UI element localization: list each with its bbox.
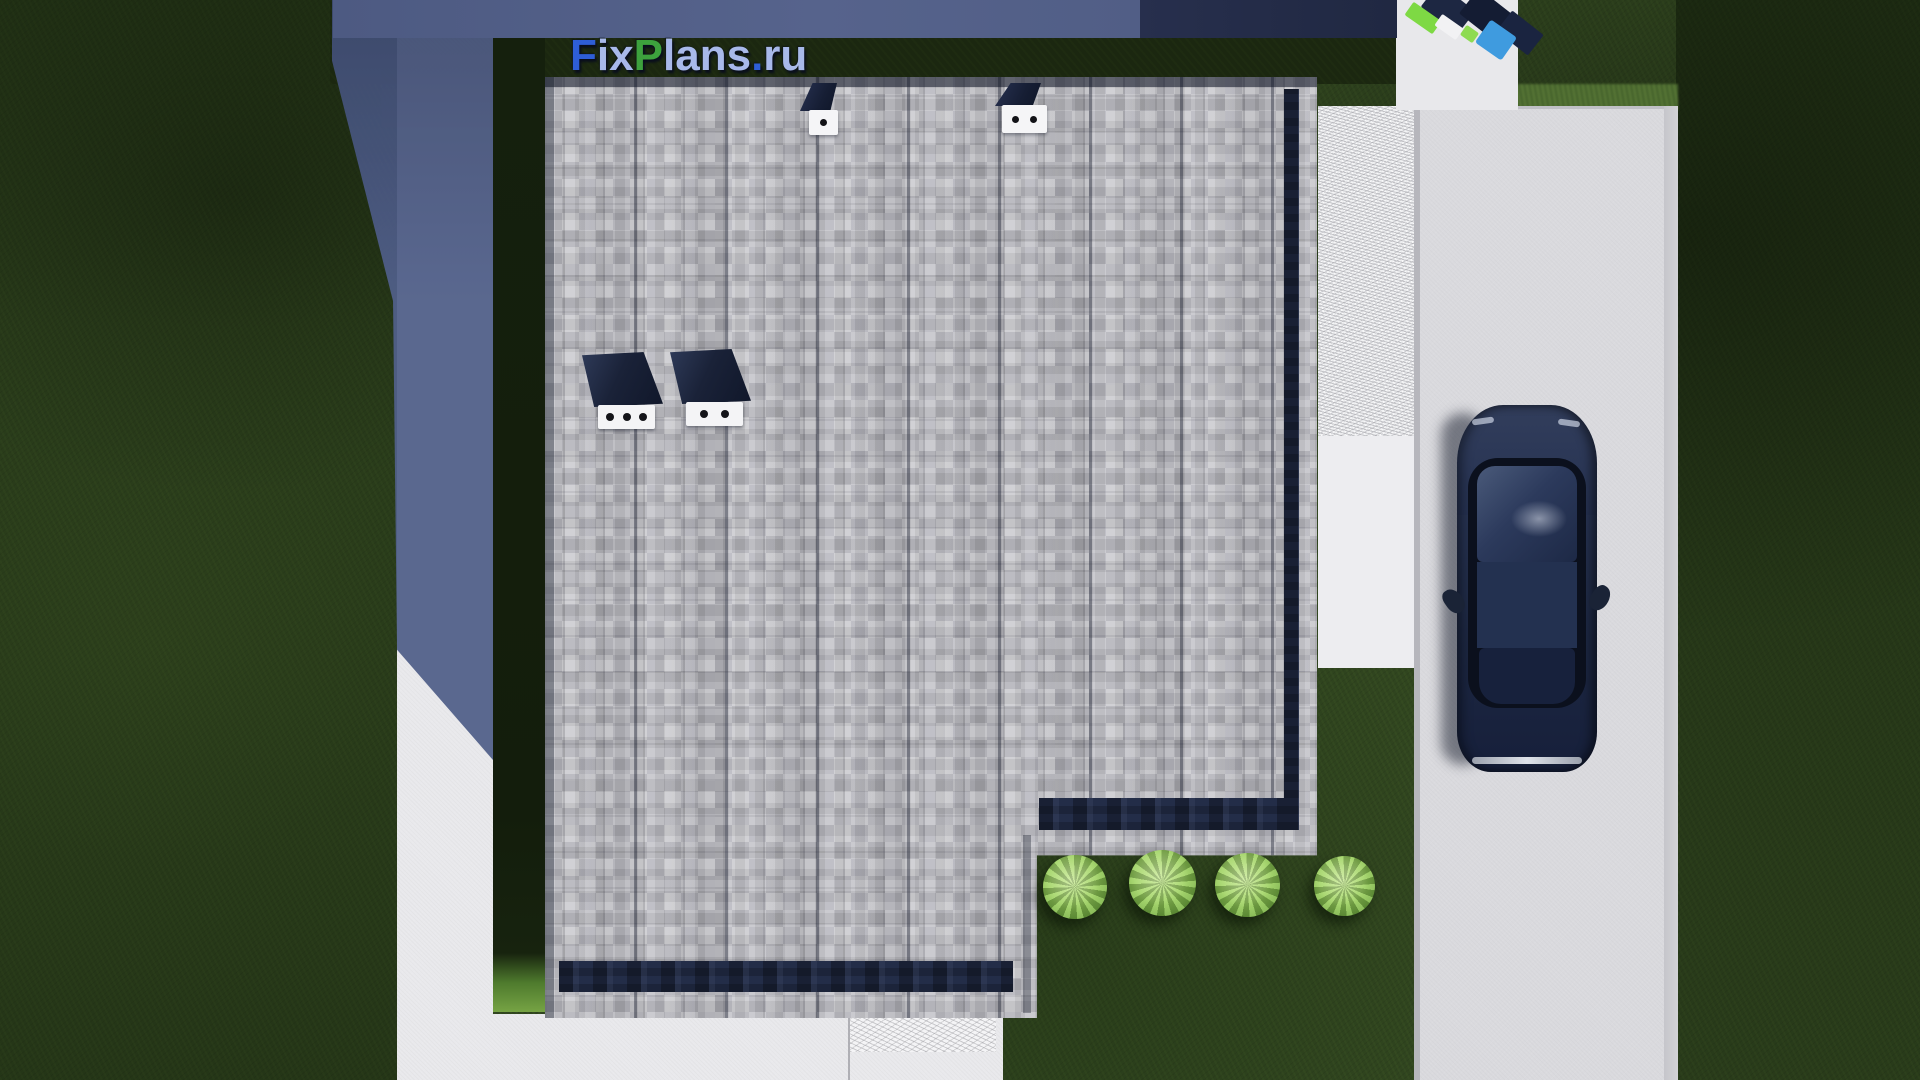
- grass-left-dark: [0, 0, 400, 1080]
- logo-letter-8: .: [751, 34, 763, 78]
- site-plan-render: FixPlans.ru: [0, 0, 1920, 1080]
- logo-letter-4: l: [663, 34, 675, 78]
- logo-letter-0: F: [570, 34, 597, 78]
- vent-1-hole: [820, 119, 827, 126]
- roof-border-notch: [1039, 798, 1299, 830]
- car-roof: [1477, 562, 1577, 648]
- vent-1-face: [809, 110, 838, 135]
- roof-border-step: [1023, 835, 1031, 1013]
- bush-3: [1215, 853, 1280, 917]
- chimney-2-face: [686, 402, 743, 426]
- logo-letter-6: n: [700, 34, 727, 78]
- bush-4: [1314, 856, 1375, 916]
- chimney-1-hole-1: [606, 413, 614, 421]
- chimney-2-hole-1: [700, 410, 708, 418]
- driveway-right-edge: [1664, 106, 1678, 1080]
- car-windshield: [1479, 648, 1575, 704]
- fixplans-logo: FixPlans.ru: [570, 34, 807, 80]
- bush-2: [1129, 850, 1196, 916]
- walkway-seam: [848, 1016, 850, 1080]
- roof-left-edge: [545, 77, 554, 1018]
- chimney-1-face: [598, 405, 655, 429]
- logo-letter-9: r: [763, 34, 780, 78]
- logo-letter-5: a: [675, 34, 699, 78]
- grass-right-dark: [1676, 0, 1920, 1080]
- chimney-1-hole-3: [639, 413, 647, 421]
- logo-letter-7: s: [727, 34, 751, 78]
- driveway-left-seam: [1414, 106, 1420, 1080]
- roof-border-right: [1284, 89, 1299, 830]
- vent-2-hole-2: [1030, 116, 1037, 123]
- chimney-1-hole-2: [623, 413, 631, 421]
- logo-letter-10: u: [780, 34, 807, 78]
- bush-1: [1043, 855, 1107, 919]
- logo-letter-3: P: [634, 34, 663, 78]
- vent-2-face: [1002, 105, 1047, 133]
- shaded-grass-strip-left-of-house: [493, 28, 545, 1012]
- vent-2-hole-1: [1012, 116, 1019, 123]
- car-front-chrome-trim: [1472, 757, 1582, 764]
- chimney-2-hole-2: [721, 410, 729, 418]
- roof-border-bottom-left: [559, 961, 1013, 992]
- car-rear-window-glass: [1477, 466, 1577, 562]
- patio-tree-shadow-texture: [1318, 106, 1418, 436]
- walkway-bright-patch: [850, 1016, 996, 1052]
- top-shadow-neighbor-roof: [1140, 0, 1397, 38]
- logo-letter-2: x: [609, 34, 633, 78]
- logo-letter-1: i: [597, 34, 609, 78]
